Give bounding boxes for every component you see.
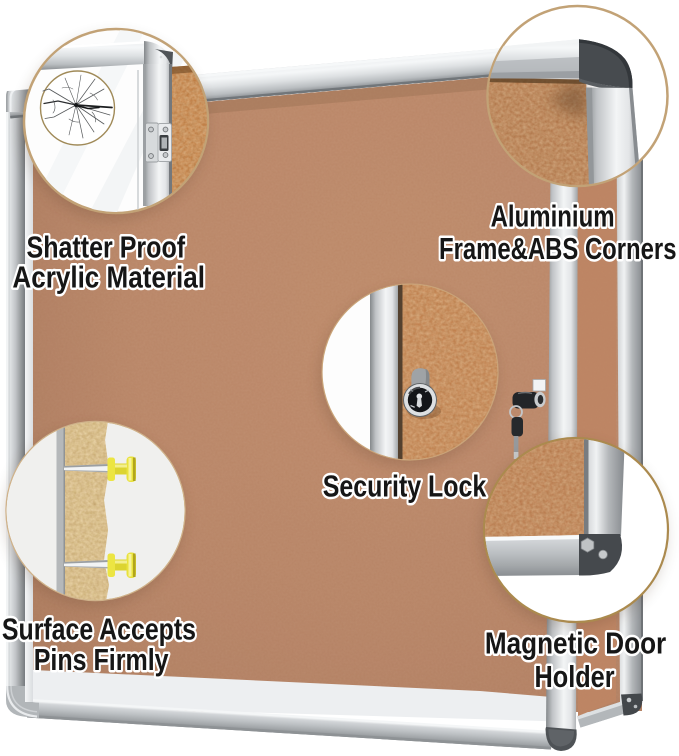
svg-text:Acrylic Material: Acrylic Material <box>12 260 205 295</box>
svg-text:Holder: Holder <box>535 659 615 694</box>
svg-text:Aluminium: Aluminium <box>491 198 615 233</box>
svg-text:Frame&ABS Corners: Frame&ABS Corners <box>439 231 677 266</box>
svg-text:Security Lock: Security Lock <box>323 469 487 504</box>
svg-text:Magnetic Door: Magnetic Door <box>485 625 666 660</box>
svg-text:Pins Firmly: Pins Firmly <box>34 642 170 677</box>
